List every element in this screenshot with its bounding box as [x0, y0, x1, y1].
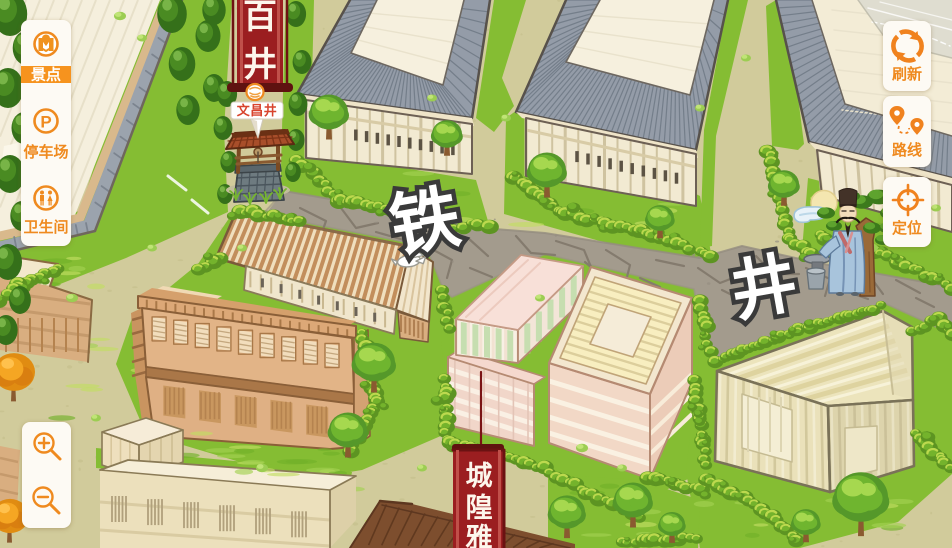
svg-text:文昌井: 文昌井	[237, 103, 278, 118]
svg-text:刷新: 刷新	[892, 65, 922, 83]
svg-text:城: 城	[466, 461, 493, 491]
svg-text:百: 百	[243, 0, 277, 36]
svg-text:卫生间: 卫生间	[23, 218, 68, 236]
svg-text:井: 井	[243, 46, 277, 84]
svg-text:隍: 隍	[466, 493, 493, 523]
svg-text:雅: 雅	[466, 523, 493, 548]
svg-text:P: P	[40, 113, 51, 132]
svg-text:井: 井	[725, 245, 803, 329]
svg-text:景点: 景点	[31, 66, 61, 84]
svg-text:铁: 铁	[384, 178, 465, 266]
svg-text:路线: 路线	[892, 141, 922, 159]
svg-text:停车场: 停车场	[23, 143, 68, 161]
svg-text:定位: 定位	[892, 219, 922, 237]
